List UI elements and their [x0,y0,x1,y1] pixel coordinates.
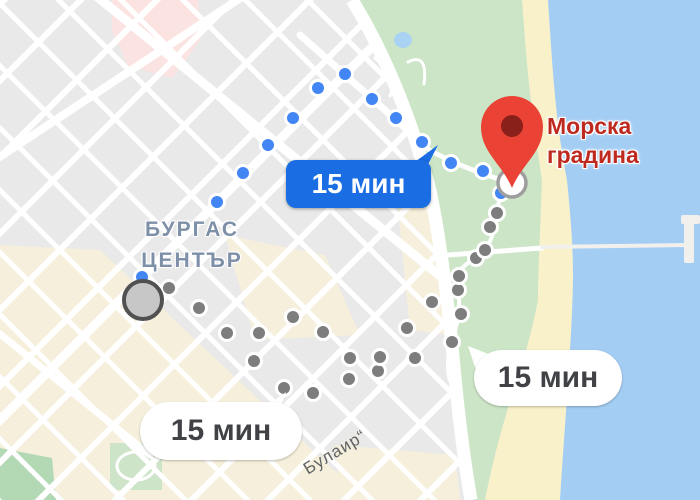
route-dot [316,325,331,340]
route-dot [342,372,357,387]
district-label-line1: БУРГАС [112,214,272,245]
route-dot [338,67,353,82]
route-dot [192,301,207,316]
route-dot [261,138,276,153]
district-label-line2: ЦЕНТЪР [112,245,272,276]
alt-route-duration-pill-bottom[interactable]: 15 мин [140,402,302,460]
route-dot [478,243,493,258]
destination-label-line1: Морска [547,112,639,141]
route-dot [389,111,404,126]
destination-label-line2: градина [547,141,639,170]
route-dot [444,156,459,171]
route-dot [415,135,430,150]
route-dot [311,81,326,96]
route-dot [490,206,505,221]
route-dot [373,350,388,365]
route-dot [162,281,177,296]
alt-route-duration-bottom: 15 мин [171,414,271,448]
route-dot [452,269,467,284]
route-dot [252,326,267,341]
route-dot [400,321,415,336]
origin-marker[interactable] [124,281,162,319]
route-dot [277,381,292,396]
route-dot [365,92,380,107]
map-canvas[interactable] [0,0,700,500]
alt-route-duration-right: 15 мин [498,361,598,395]
route-dot [220,326,235,341]
route-dot [476,164,491,179]
route-dot [343,351,358,366]
google-maps-route-view[interactable]: БУРГАС ЦЕНТЪР Морска градина 15 мин 15 м… [0,0,700,500]
destination-label[interactable]: Морска градина [547,112,639,170]
route-dot [286,111,301,126]
selected-route-duration-callout[interactable]: 15 мин [286,160,431,208]
route-dot [454,307,469,322]
route-dot [286,310,301,325]
route-dot [425,295,440,310]
route-dot [408,351,423,366]
route-dot [236,166,251,181]
route-dot [247,354,262,369]
selected-route-duration: 15 мин [312,168,406,200]
route-dot [210,195,225,210]
alt-route-duration-pill-right[interactable]: 15 мин [474,350,622,406]
route-dot [445,335,460,350]
district-label: БУРГАС ЦЕНТЪР [112,214,272,276]
park-pond [394,32,412,48]
route-dot [306,386,321,401]
